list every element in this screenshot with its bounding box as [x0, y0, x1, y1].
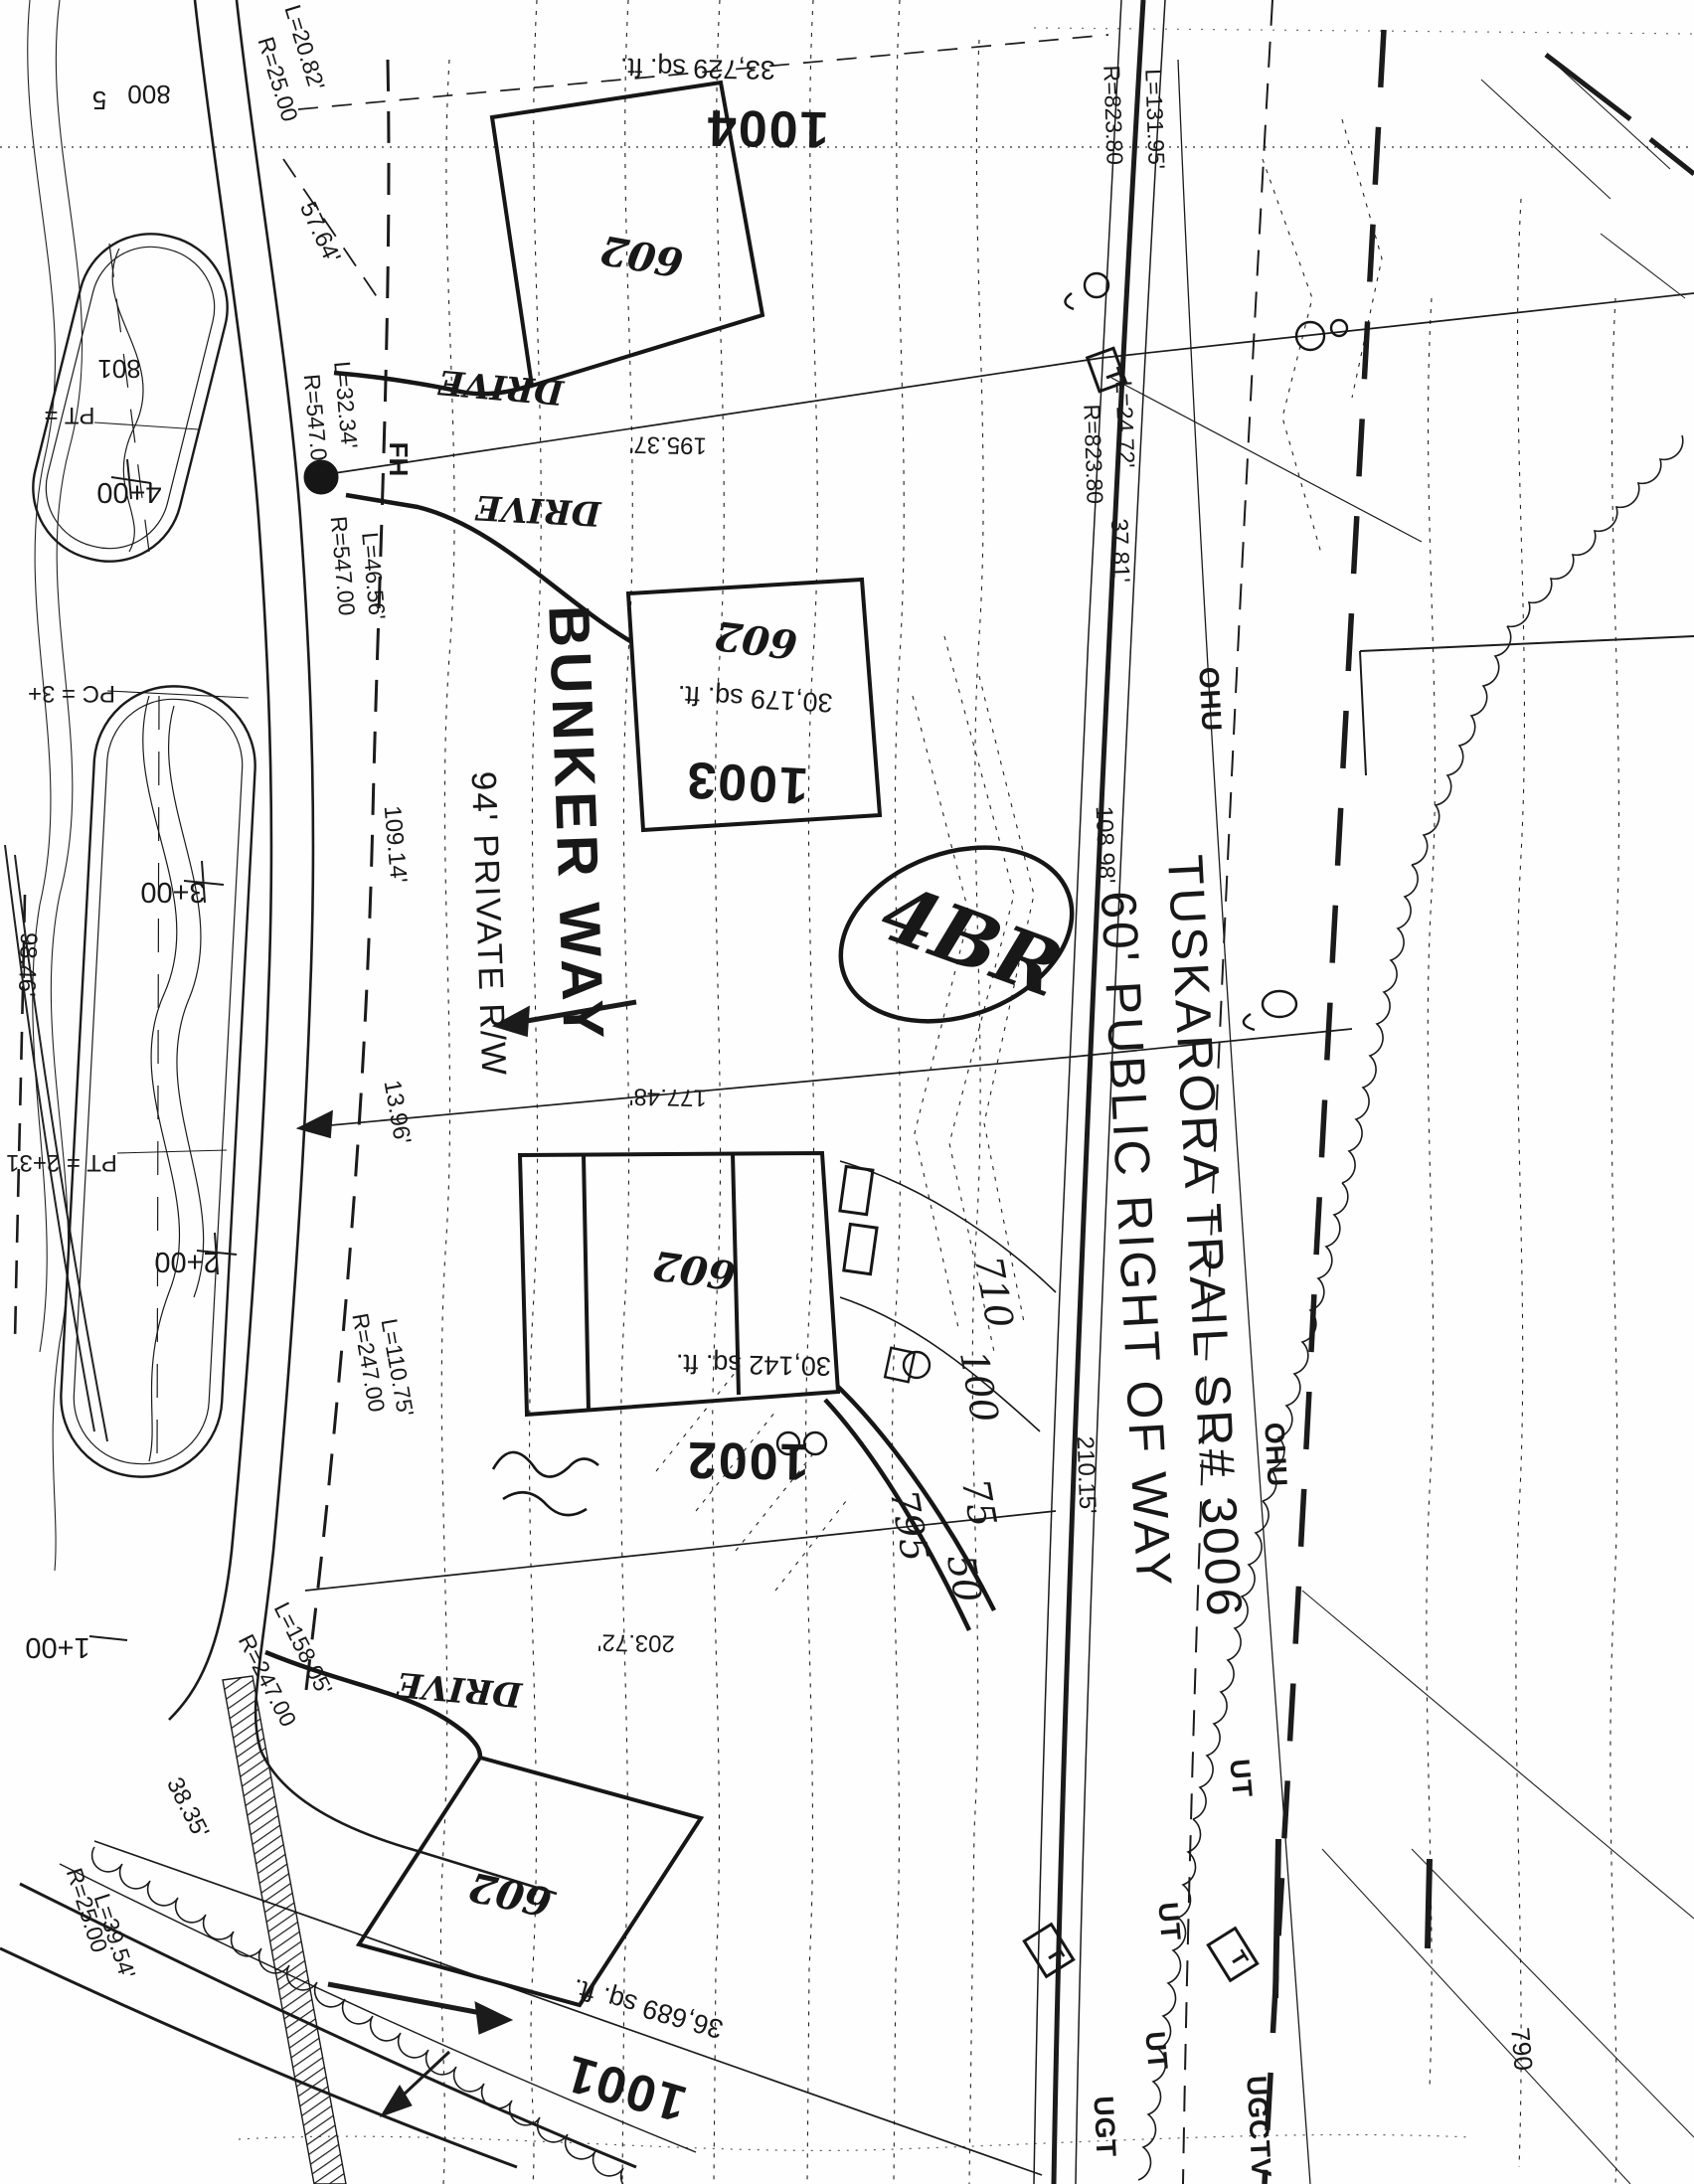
contour-line — [1610, 298, 1619, 2184]
contour-line — [1302, 1591, 1694, 1919]
tree-line-east — [1412, 626, 1511, 865]
ohu-label-a: OHU — [1193, 666, 1227, 733]
road-name-bunker: BUNKER WAY — [536, 604, 615, 1045]
dim-203-72: 203.72' — [597, 1628, 675, 1656]
contour-label-50: 50 — [938, 1551, 990, 1605]
tree-line-east — [1507, 435, 1683, 626]
contour-label-790: 790 — [1505, 2026, 1539, 2072]
lot-area-1001: 36,689 sq. ft. — [569, 1973, 726, 2045]
dim-57-64: 57.64' — [294, 198, 346, 267]
tree-line-southwest — [92, 1847, 651, 2184]
house-number-1002: 602 — [650, 1241, 739, 1298]
road-rw-bunker: 94' PRIVATE R/W — [464, 770, 514, 1078]
contour-lines — [440, 0, 1618, 2184]
label-leader-line — [94, 422, 249, 1153]
road-loop-outline — [71, 696, 246, 1467]
parked-vehicle-symbol — [840, 1166, 877, 1273]
adjoiner-line — [1360, 636, 1694, 775]
station-pc: PC = 3+ — [28, 680, 115, 707]
existing-road-edge — [0, 1948, 517, 2167]
ut-label-b: UT — [1152, 1901, 1186, 1942]
contour-label-100: 100 — [951, 1347, 1007, 1426]
road-edge — [169, 0, 271, 1720]
handwritten-scribble — [503, 1492, 587, 1515]
dim-37-81: 37.81' — [1105, 518, 1134, 584]
tree-lines — [92, 435, 1683, 2184]
lot-number-1001: 1001 — [559, 2043, 693, 2132]
utility-pole-symbol — [777, 273, 1347, 1454]
creek-line — [28, 0, 56, 1352]
right-of-way-dashed — [306, 60, 389, 1690]
ut-label-c: UT — [1139, 2030, 1173, 2072]
station-1-00: 1+00 — [25, 1631, 89, 1663]
ugt-label: UGT — [1088, 2096, 1121, 2159]
lot-boundaries — [94, 35, 1694, 2175]
station-pt-upper: PT = — [45, 402, 95, 428]
contour-label-800: 800 — [127, 80, 170, 109]
dim-38-35: 38.35' — [161, 1773, 214, 1843]
station-4-00: 4+00 — [96, 476, 161, 508]
contour-line — [893, 0, 905, 2184]
contour-line — [1516, 199, 1525, 2167]
site-plan-drawing: BUNKER WAY 94' PRIVATE R/W TUSKARORA TRA… — [0, 0, 1694, 2184]
dim-210-15: 210.15' — [1072, 1435, 1101, 1514]
curve-r823-a: R=823.80 — [1099, 65, 1127, 165]
contour-line — [1481, 60, 1685, 298]
ugctv-label: UGCTV — [1241, 2075, 1276, 2178]
lot-area-1003: 30,179 sq. ft. — [677, 680, 833, 718]
drive-label-2: DRIVE — [473, 487, 602, 534]
contour-line — [1427, 298, 1436, 2088]
lot-number-1004: 1004 — [705, 98, 829, 158]
drive-label-3: DRIVE — [394, 1663, 524, 1714]
handwritten-scribble — [493, 1452, 598, 1477]
utility-bar — [1275, 1839, 1430, 1998]
contour-label-5: 5 — [92, 85, 106, 115]
house-number-1001: 602 — [464, 1863, 555, 1926]
contour-line — [913, 696, 969, 1332]
lot-area-1004: 33,729 sq. ft. — [620, 53, 776, 85]
dim-109-14: 109.14' — [379, 804, 413, 884]
ut-label-a: UT — [1224, 1758, 1258, 1799]
tree-line-east — [1342, 865, 1418, 1183]
dim-98-46: 98.46' — [13, 931, 42, 997]
creek-in-loop — [169, 706, 204, 1297]
dim-195-37: 195.37' — [629, 430, 707, 458]
driveway-lot-1002-north — [840, 1161, 1056, 1431]
contour-label-801: 801 — [97, 354, 140, 384]
contour-line — [806, 0, 818, 2184]
road-loop-outline — [34, 235, 228, 562]
contour-line — [1412, 1849, 1694, 2137]
contour-line — [1263, 159, 1322, 557]
contour-label-75: 75 — [953, 1475, 1005, 1530]
curve-l24: L=24.72' — [1110, 380, 1139, 468]
houses — [359, 83, 880, 2005]
hatched-pavement-band — [223, 1676, 346, 2184]
tree-line-east — [1138, 1819, 1201, 2180]
lot-number-1003: 1003 — [684, 751, 810, 814]
curve-r823-b: R=823.80 — [1079, 404, 1107, 504]
ohu-label-b: OHU — [1259, 1422, 1292, 1488]
road-loop-outline — [57, 682, 258, 1480]
creek-in-loop — [143, 696, 180, 1461]
dim-13-96: 13.96' — [378, 1079, 416, 1146]
labels: BUNKER WAY 94' PRIVATE R/W TUSKARORA TRA… — [6, 2, 1539, 2179]
contour-label-710: 710 — [966, 1253, 1022, 1331]
curve-l131: L=131.95' — [1140, 69, 1170, 170]
dim-177-48: 177.48' — [629, 1083, 707, 1110]
road-loop-outline — [18, 219, 243, 577]
utility-lateral — [1111, 378, 1422, 542]
station-pt-lower: PT = 2+31 — [6, 1149, 117, 1176]
curve-l46: L=46.56' — [357, 531, 391, 620]
house-number-1003: 602 — [712, 611, 800, 668]
flow-arrow — [328, 1984, 497, 2016]
boundary-heavy-dashed — [1265, 30, 1384, 2184]
drive-label-1: DRIVE — [435, 361, 566, 412]
dim-108-98: 108.98' — [1091, 805, 1120, 884]
lot-area-1002: 30,142 sq. ft. — [676, 1349, 832, 1382]
curve-r547-a: R=547.00 — [299, 373, 334, 474]
lot-line-south — [94, 1841, 1042, 2175]
plat-scan-sheet: BUNKER WAY 94' PRIVATE R/W TUSKARORA TRA… — [0, 0, 1694, 2184]
contour-line — [530, 0, 542, 2184]
boundary-heavy-dash — [1546, 55, 1694, 174]
station-2-00: 2+00 — [154, 1246, 219, 1277]
contour-line — [1322, 1849, 1630, 2184]
bedroom-annotation: 4BR — [870, 868, 1074, 1016]
station-tick — [89, 459, 237, 1640]
station-3-00: 3+00 — [140, 876, 205, 908]
arrowhead — [475, 2002, 512, 2034]
fire-hydrant-label: FH — [384, 442, 414, 477]
lot-number-1002: 1002 — [685, 1430, 809, 1490]
contour-line — [969, 40, 983, 2184]
curve-r547-b: R=547.00 — [326, 515, 361, 616]
house-number-1004: 602 — [596, 226, 686, 286]
